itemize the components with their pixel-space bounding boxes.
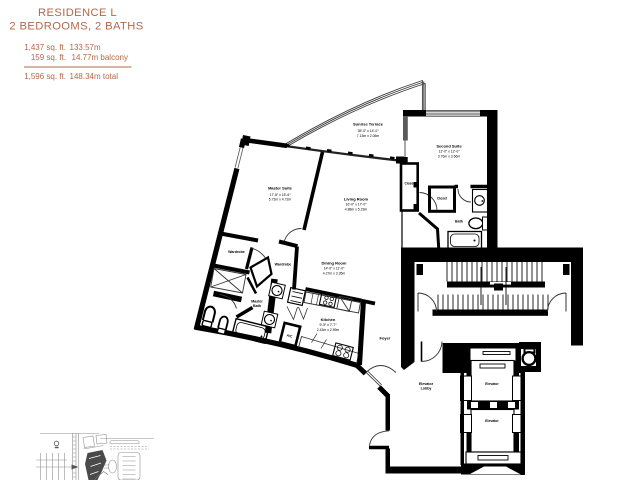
svg-text:Foyer: Foyer [380,336,391,341]
svg-text:7.13m x 2.06m: 7.13m x 2.06m [357,134,380,138]
svg-text:Bath: Bath [253,304,261,308]
svg-text:Sunrise Terrace: Sunrise Terrace [353,122,384,127]
svg-text:Living Room: Living Room [344,197,369,202]
svg-text:Second Suite: Second Suite [436,144,462,149]
svg-text:2.43m x 2.59m: 2.43m x 2.59m [317,328,340,332]
svg-text:4.27m x 3.35m: 4.27m x 3.35m [323,272,346,276]
svg-text:Elevator: Elevator [419,382,434,386]
svg-text:14′-0″ x 11′-0″: 14′-0″ x 11′-0″ [324,267,345,271]
svg-text:12′-0″ x 12′-0″: 12′-0″ x 12′-0″ [439,150,461,154]
svg-text:1,596 sq. ft.: 1,596 sq. ft. [24,72,66,81]
svg-text:Bath: Bath [455,220,463,224]
svg-text:16′-0″ x 17′-0″: 16′-0″ x 17′-0″ [346,203,368,207]
svg-text:9′-5″ x 7′-7″: 9′-5″ x 7′-7″ [319,323,337,327]
svg-text:Dining Room: Dining Room [322,261,347,266]
svg-text:Elevator: Elevator [485,419,499,423]
svg-text:2 BEDROOMS, 2 BATHS: 2 BEDROOMS, 2 BATHS [9,21,143,33]
svg-text:Master Suite: Master Suite [268,186,293,191]
svg-text:17′-8″ x 15′-6″: 17′-8″ x 15′-6″ [270,193,292,197]
svg-text:Kitchen: Kitchen [321,317,336,322]
svg-text:Lobby: Lobby [421,387,432,391]
svg-text:3.76m x 3.66m: 3.76m x 3.66m [438,155,461,159]
svg-text:133.57m: 133.57m [70,43,101,52]
svg-text:Closet: Closet [404,182,415,186]
svg-text:5.72m x 4.72m: 5.72m x 4.72m [269,198,292,202]
svg-text:Elevator: Elevator [485,382,499,386]
svg-text:Wardrobe: Wardrobe [275,263,292,267]
svg-text:1,437 sq. ft.: 1,437 sq. ft. [24,43,66,52]
svg-text:159 sq. ft.: 159 sq. ft. [31,53,66,62]
svg-text:Wardrobe: Wardrobe [228,250,245,254]
svg-text:RESIDENCE L: RESIDENCE L [38,7,117,19]
svg-text:148.34m total: 148.34m total [70,72,119,81]
svg-text:Closet: Closet [437,197,448,201]
svg-text:Master: Master [251,300,263,304]
svg-text:14.77m balcony: 14.77m balcony [72,53,128,62]
svg-text:35′-0″ x 14′-0″: 35′-0″ x 14′-0″ [358,129,380,133]
svg-text:4.88m x 5.23m: 4.88m x 5.23m [345,208,368,212]
